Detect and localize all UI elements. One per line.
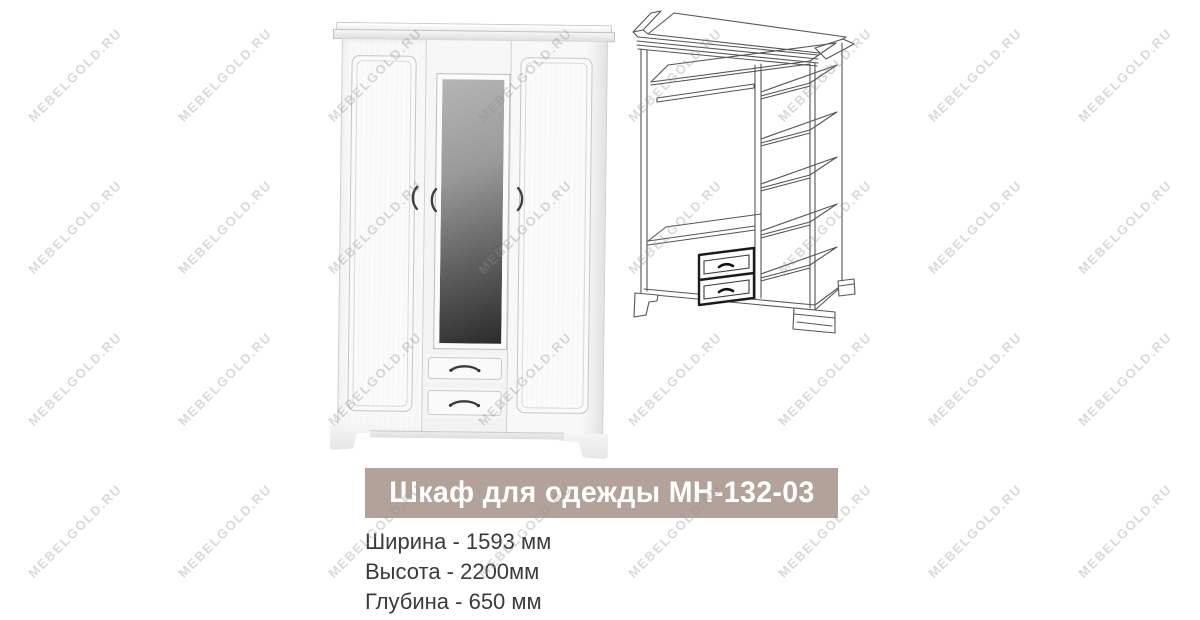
- diagram-left-bottom-shelf: [648, 214, 761, 245]
- watermark-text: MEBELGOLD.RU: [25, 25, 125, 125]
- left-door-handle-icon: [410, 185, 419, 211]
- watermark-text: MEBELGOLD.RU: [925, 329, 1025, 429]
- watermark-text: MEBELGOLD.RU: [25, 329, 125, 429]
- watermark-text: MEBELGOLD.RU: [925, 177, 1025, 277]
- watermark-text: MEBELGOLD.RU: [625, 329, 725, 429]
- right-door-panel: [516, 57, 592, 414]
- drawer-handle-icon: [447, 398, 481, 408]
- left-door-panel: [347, 55, 416, 412]
- wardrobe-body: [337, 38, 608, 435]
- photo-drawer-bottom: [424, 387, 504, 419]
- watermark-text: MEBELGOLD.RU: [1075, 25, 1175, 125]
- right-door-handle-icon: [516, 186, 525, 212]
- spec-height: Высота - 2200мм: [365, 557, 551, 587]
- product-card: Шкаф для одежды МН-132-03 Ширина - 1593 …: [0, 0, 1200, 620]
- mirror-door-handle-icon: [429, 187, 438, 213]
- watermark-text: MEBELGOLD.RU: [925, 481, 1025, 581]
- watermark-text: MEBELGOLD.RU: [175, 25, 275, 125]
- watermark-text: MEBELGOLD.RU: [1075, 177, 1175, 277]
- diagram-right-shelves: [761, 65, 837, 281]
- diagram-drawers: [699, 248, 754, 305]
- watermark-text: MEBELGOLD.RU: [925, 25, 1025, 125]
- watermark-text: MEBELGOLD.RU: [175, 329, 275, 429]
- wardrobe-mirror-section: [422, 40, 512, 433]
- watermark-text: MEBELGOLD.RU: [1075, 329, 1175, 429]
- product-title-bar: Шкаф для одежды МН-132-03: [365, 468, 838, 518]
- spec-width: Ширина - 1593 мм: [365, 527, 551, 557]
- watermark-text: MEBELGOLD.RU: [175, 177, 275, 277]
- product-title: Шкаф для одежды МН-132-03: [389, 476, 815, 510]
- watermark-text: MEBELGOLD.RU: [175, 481, 275, 581]
- wardrobe-apron: [370, 430, 564, 439]
- diagram-cornice: [633, 11, 854, 66]
- mirror: [434, 74, 509, 349]
- wardrobe-right-door: [507, 41, 607, 434]
- photo-drawer-top: [425, 354, 505, 383]
- wardrobe-photo: [328, 22, 615, 451]
- watermark-text: MEBELGOLD.RU: [25, 177, 125, 277]
- spec-depth: Глубина - 650 мм: [365, 587, 551, 617]
- wardrobe-left-door: [338, 39, 427, 432]
- watermark-text: MEBELGOLD.RU: [1075, 481, 1175, 581]
- watermark-text: MEBELGOLD.RU: [775, 329, 875, 429]
- wardrobe-interior-diagram: [622, 3, 862, 343]
- watermark-text: MEBELGOLD.RU: [25, 481, 125, 581]
- product-specs: Ширина - 1593 мм Высота - 2200мм Глубина…: [365, 527, 551, 617]
- wardrobe-right-foot: [558, 433, 608, 460]
- drawer-handle-icon: [448, 363, 482, 373]
- diagram-hanging-rod: [657, 84, 754, 102]
